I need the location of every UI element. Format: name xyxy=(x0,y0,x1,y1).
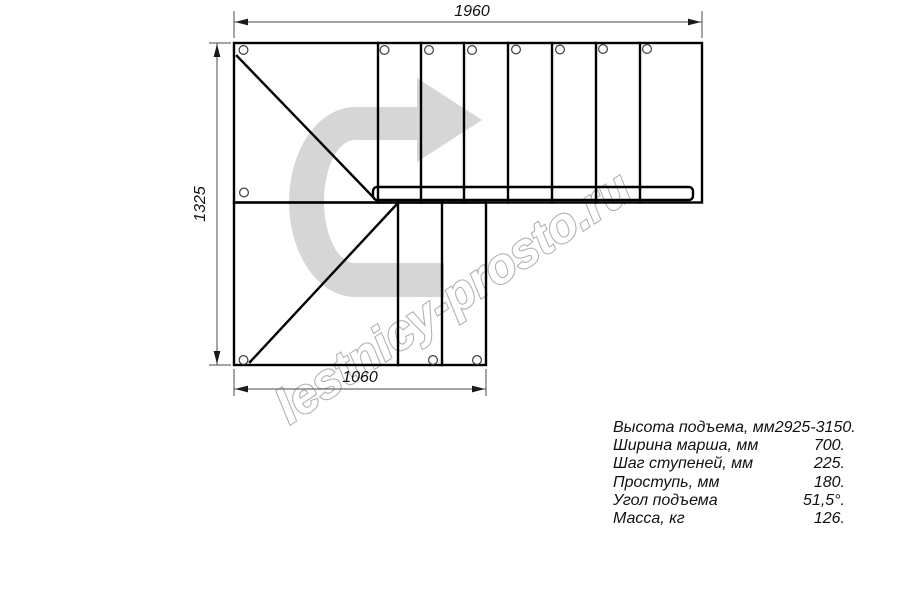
spec-value: 700. xyxy=(814,437,845,455)
spec-row-tread: Проступь, мм 180. xyxy=(613,474,845,492)
spec-label: Масса, кг xyxy=(613,510,685,528)
mounting-hole xyxy=(556,45,565,54)
dimension-left-height: 1325 xyxy=(192,43,231,365)
dimension-arrow-down xyxy=(214,351,221,364)
mounting-hole xyxy=(468,46,477,55)
mounting-hole xyxy=(380,46,389,55)
spec-row-mass: Масса, кг 126. xyxy=(613,510,845,528)
dimension-arrow-right xyxy=(472,386,485,393)
mounting-hole xyxy=(429,356,438,365)
dimension-top-width: 1960 xyxy=(234,3,702,38)
mounting-hole xyxy=(473,356,482,365)
mounting-hole xyxy=(643,45,652,54)
dimension-value-top: 1960 xyxy=(454,3,490,20)
spec-row-flight-width: Ширина марша, мм 700. xyxy=(613,437,845,455)
spec-label: Угол подъема xyxy=(613,492,718,510)
spec-label: Высота подъема, мм xyxy=(613,419,775,437)
mounting-hole xyxy=(240,188,249,197)
spec-value: 225. xyxy=(814,455,845,473)
dimension-arrow-left xyxy=(235,19,248,26)
mounting-hole xyxy=(599,45,608,54)
spec-row-angle: Угол подъема 51,5°. xyxy=(613,492,845,510)
dimension-arrow-left xyxy=(235,386,248,393)
spec-label: Ширина марша, мм xyxy=(613,437,758,455)
spec-value: 51,5°. xyxy=(803,492,845,510)
dimension-arrow-right xyxy=(688,19,701,26)
spec-value: 180. xyxy=(814,474,845,492)
dimension-value-bottom: 1060 xyxy=(342,369,378,386)
spec-value: 126. xyxy=(814,510,845,528)
stair-plan-page: lestnicy-prosto.ru xyxy=(0,0,900,600)
spec-label: Шаг ступеней, мм xyxy=(613,455,753,473)
mounting-hole xyxy=(425,46,434,55)
mounting-hole xyxy=(239,356,248,365)
spec-row-height: Высота подъема, мм 2925-3150. xyxy=(613,419,845,437)
spec-table: Высота подъема, мм 2925-3150. Ширина мар… xyxy=(613,419,845,528)
spec-value: 2925-3150. xyxy=(775,419,856,437)
dimension-arrow-up xyxy=(214,44,221,57)
mounting-hole xyxy=(512,45,521,54)
dimension-value-left: 1325 xyxy=(192,186,209,222)
spec-row-step-pitch: Шаг ступеней, мм 225. xyxy=(613,455,845,473)
spec-label: Проступь, мм xyxy=(613,474,719,492)
mounting-hole xyxy=(239,46,248,55)
